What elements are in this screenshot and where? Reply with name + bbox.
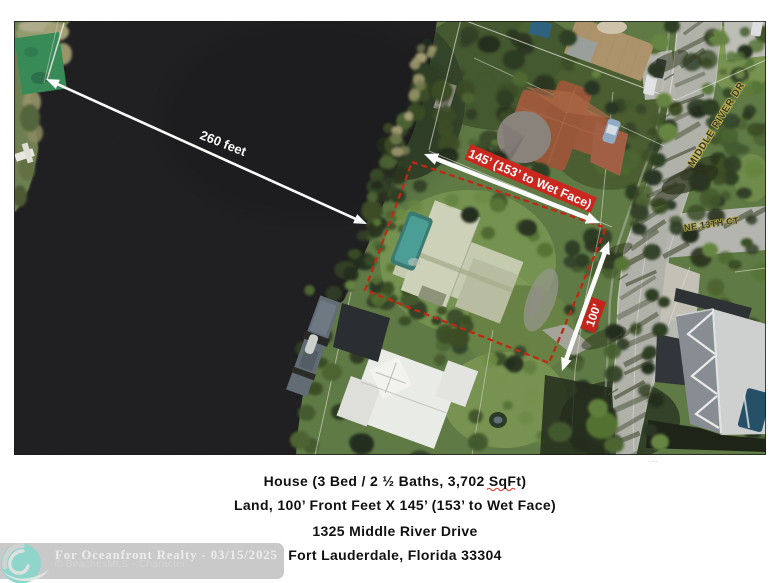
svg-text:· ···: · ··· [648, 459, 658, 465]
